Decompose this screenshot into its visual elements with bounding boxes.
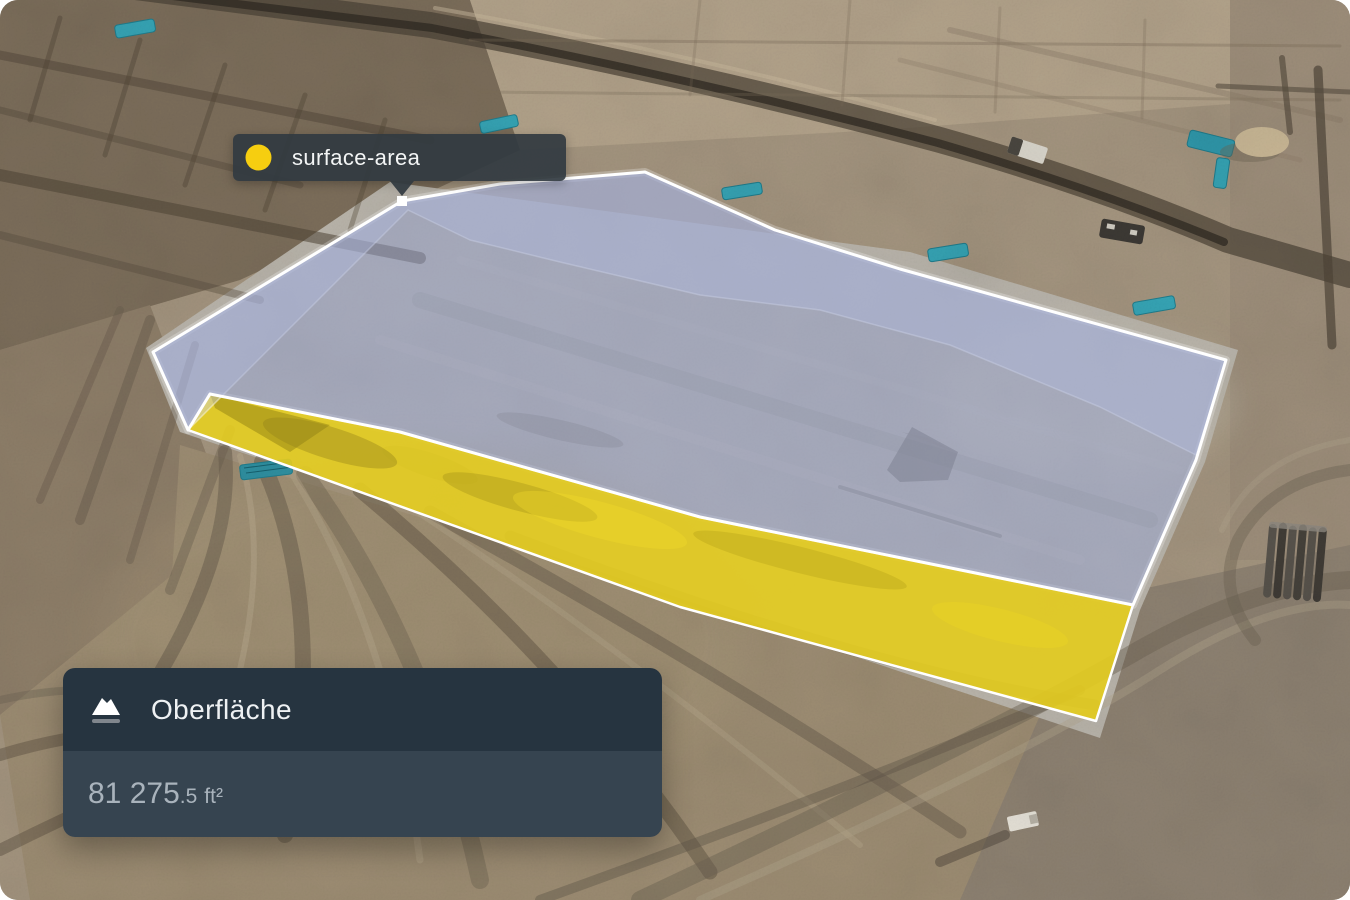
- vertex-handle[interactable]: [397, 196, 407, 206]
- area-unit: ft²: [204, 785, 223, 808]
- app-canvas: surface-area Oberfläche 81 275.5ft²: [0, 0, 1350, 900]
- area-value: 81 275.5ft²: [88, 779, 223, 809]
- panel-title: Oberfläche: [151, 694, 292, 726]
- marker-dot-icon: [245, 144, 272, 171]
- tooltip-label: surface-area: [292, 145, 420, 171]
- area-value-main: 81 275: [88, 777, 180, 810]
- panel-header: Oberfläche: [63, 668, 662, 751]
- tooltip-pointer-icon: [390, 181, 414, 196]
- panel-body: 81 275.5ft²: [63, 751, 662, 837]
- area-value-fraction: .5: [180, 785, 198, 808]
- measurement-tooltip[interactable]: surface-area: [233, 134, 566, 181]
- measurement-panel: Oberfläche 81 275.5ft²: [63, 668, 662, 837]
- surface-icon: [87, 690, 125, 730]
